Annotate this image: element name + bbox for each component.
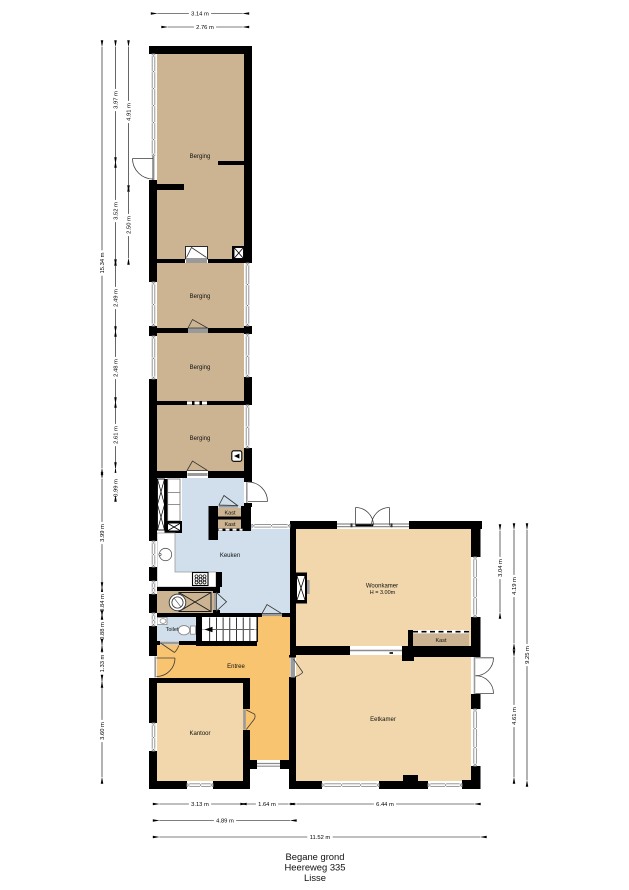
svg-text:4.91 m: 4.91 m [127,103,133,121]
svg-text:1.33 m: 1.33 m [100,654,106,672]
svg-text:Eetkamer: Eetkamer [370,717,396,723]
svg-text:11.52 m: 11.52 m [310,835,331,841]
svg-text:Kast: Kast [435,638,446,644]
svg-text:3.04 m: 3.04 m [498,559,504,577]
svg-text:Kast: Kast [224,522,235,528]
svg-text:Berging: Berging [190,365,211,371]
svg-text:3.99 m: 3.99 m [100,524,106,542]
svg-text:Entree: Entree [227,664,245,670]
svg-text:H = 3.00m: H = 3.00m [370,590,396,596]
svg-text:9.25 m: 9.25 m [525,646,531,664]
svg-text:1.64 m: 1.64 m [258,802,276,808]
svg-text:Lisse: Lisse [304,872,326,883]
svg-text:Kantoor: Kantoor [189,731,210,737]
svg-text:0.88 m: 0.88 m [100,622,106,640]
svg-text:Heereweg 335: Heereweg 335 [285,862,346,873]
svg-text:Berging: Berging [190,436,211,442]
svg-text:Kast: Kast [224,511,235,517]
svg-text:3.13 m: 3.13 m [191,802,209,808]
svg-text:2.61 m: 2.61 m [114,426,120,444]
svg-text:4.61 m: 4.61 m [512,707,518,725]
svg-text:0.99 m: 0.99 m [114,479,120,497]
svg-text:3.60 m: 3.60 m [100,722,106,740]
svg-text:2.76 m: 2.76 m [196,25,214,31]
svg-text:4.19 m: 4.19 m [512,577,518,595]
svg-text:3.14 m: 3.14 m [191,12,209,18]
svg-text:2.48 m: 2.48 m [114,359,120,377]
svg-text:15.34 m: 15.34 m [100,252,106,273]
svg-text:Begane grond: Begane grond [286,851,345,862]
svg-text:2.49 m: 2.49 m [114,289,120,307]
svg-text:Keuken: Keuken [220,553,240,559]
svg-text:6.44 m: 6.44 m [376,802,394,808]
svg-text:Berging: Berging [190,154,211,160]
svg-text:0.84 m: 0.84 m [100,594,106,612]
svg-text:4.89 m: 4.89 m [216,819,234,825]
svg-text:2.50 m: 2.50 m [127,216,133,234]
svg-text:3.52 m: 3.52 m [114,202,120,220]
svg-text:3.97 m: 3.97 m [114,91,120,109]
svg-text:Toilet: Toilet [166,627,179,633]
svg-text:Woonkamer: Woonkamer [366,584,398,590]
svg-text:Berging: Berging [190,294,211,300]
